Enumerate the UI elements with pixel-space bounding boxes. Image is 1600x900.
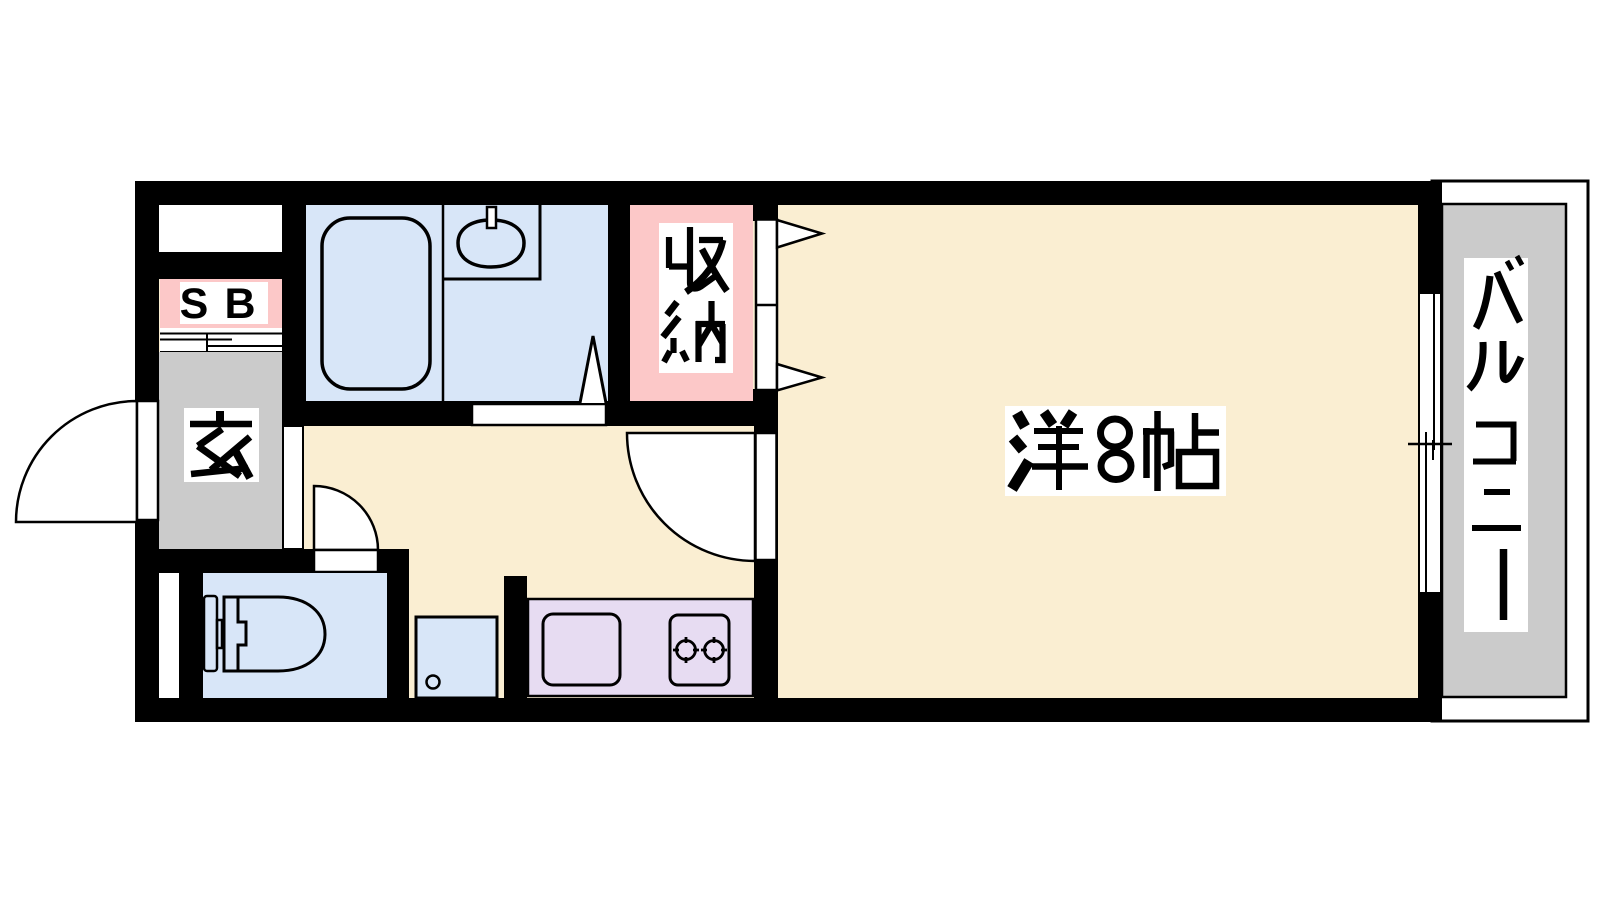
svg-text:B: B	[224, 280, 255, 328]
svg-text:S: S	[180, 280, 209, 328]
